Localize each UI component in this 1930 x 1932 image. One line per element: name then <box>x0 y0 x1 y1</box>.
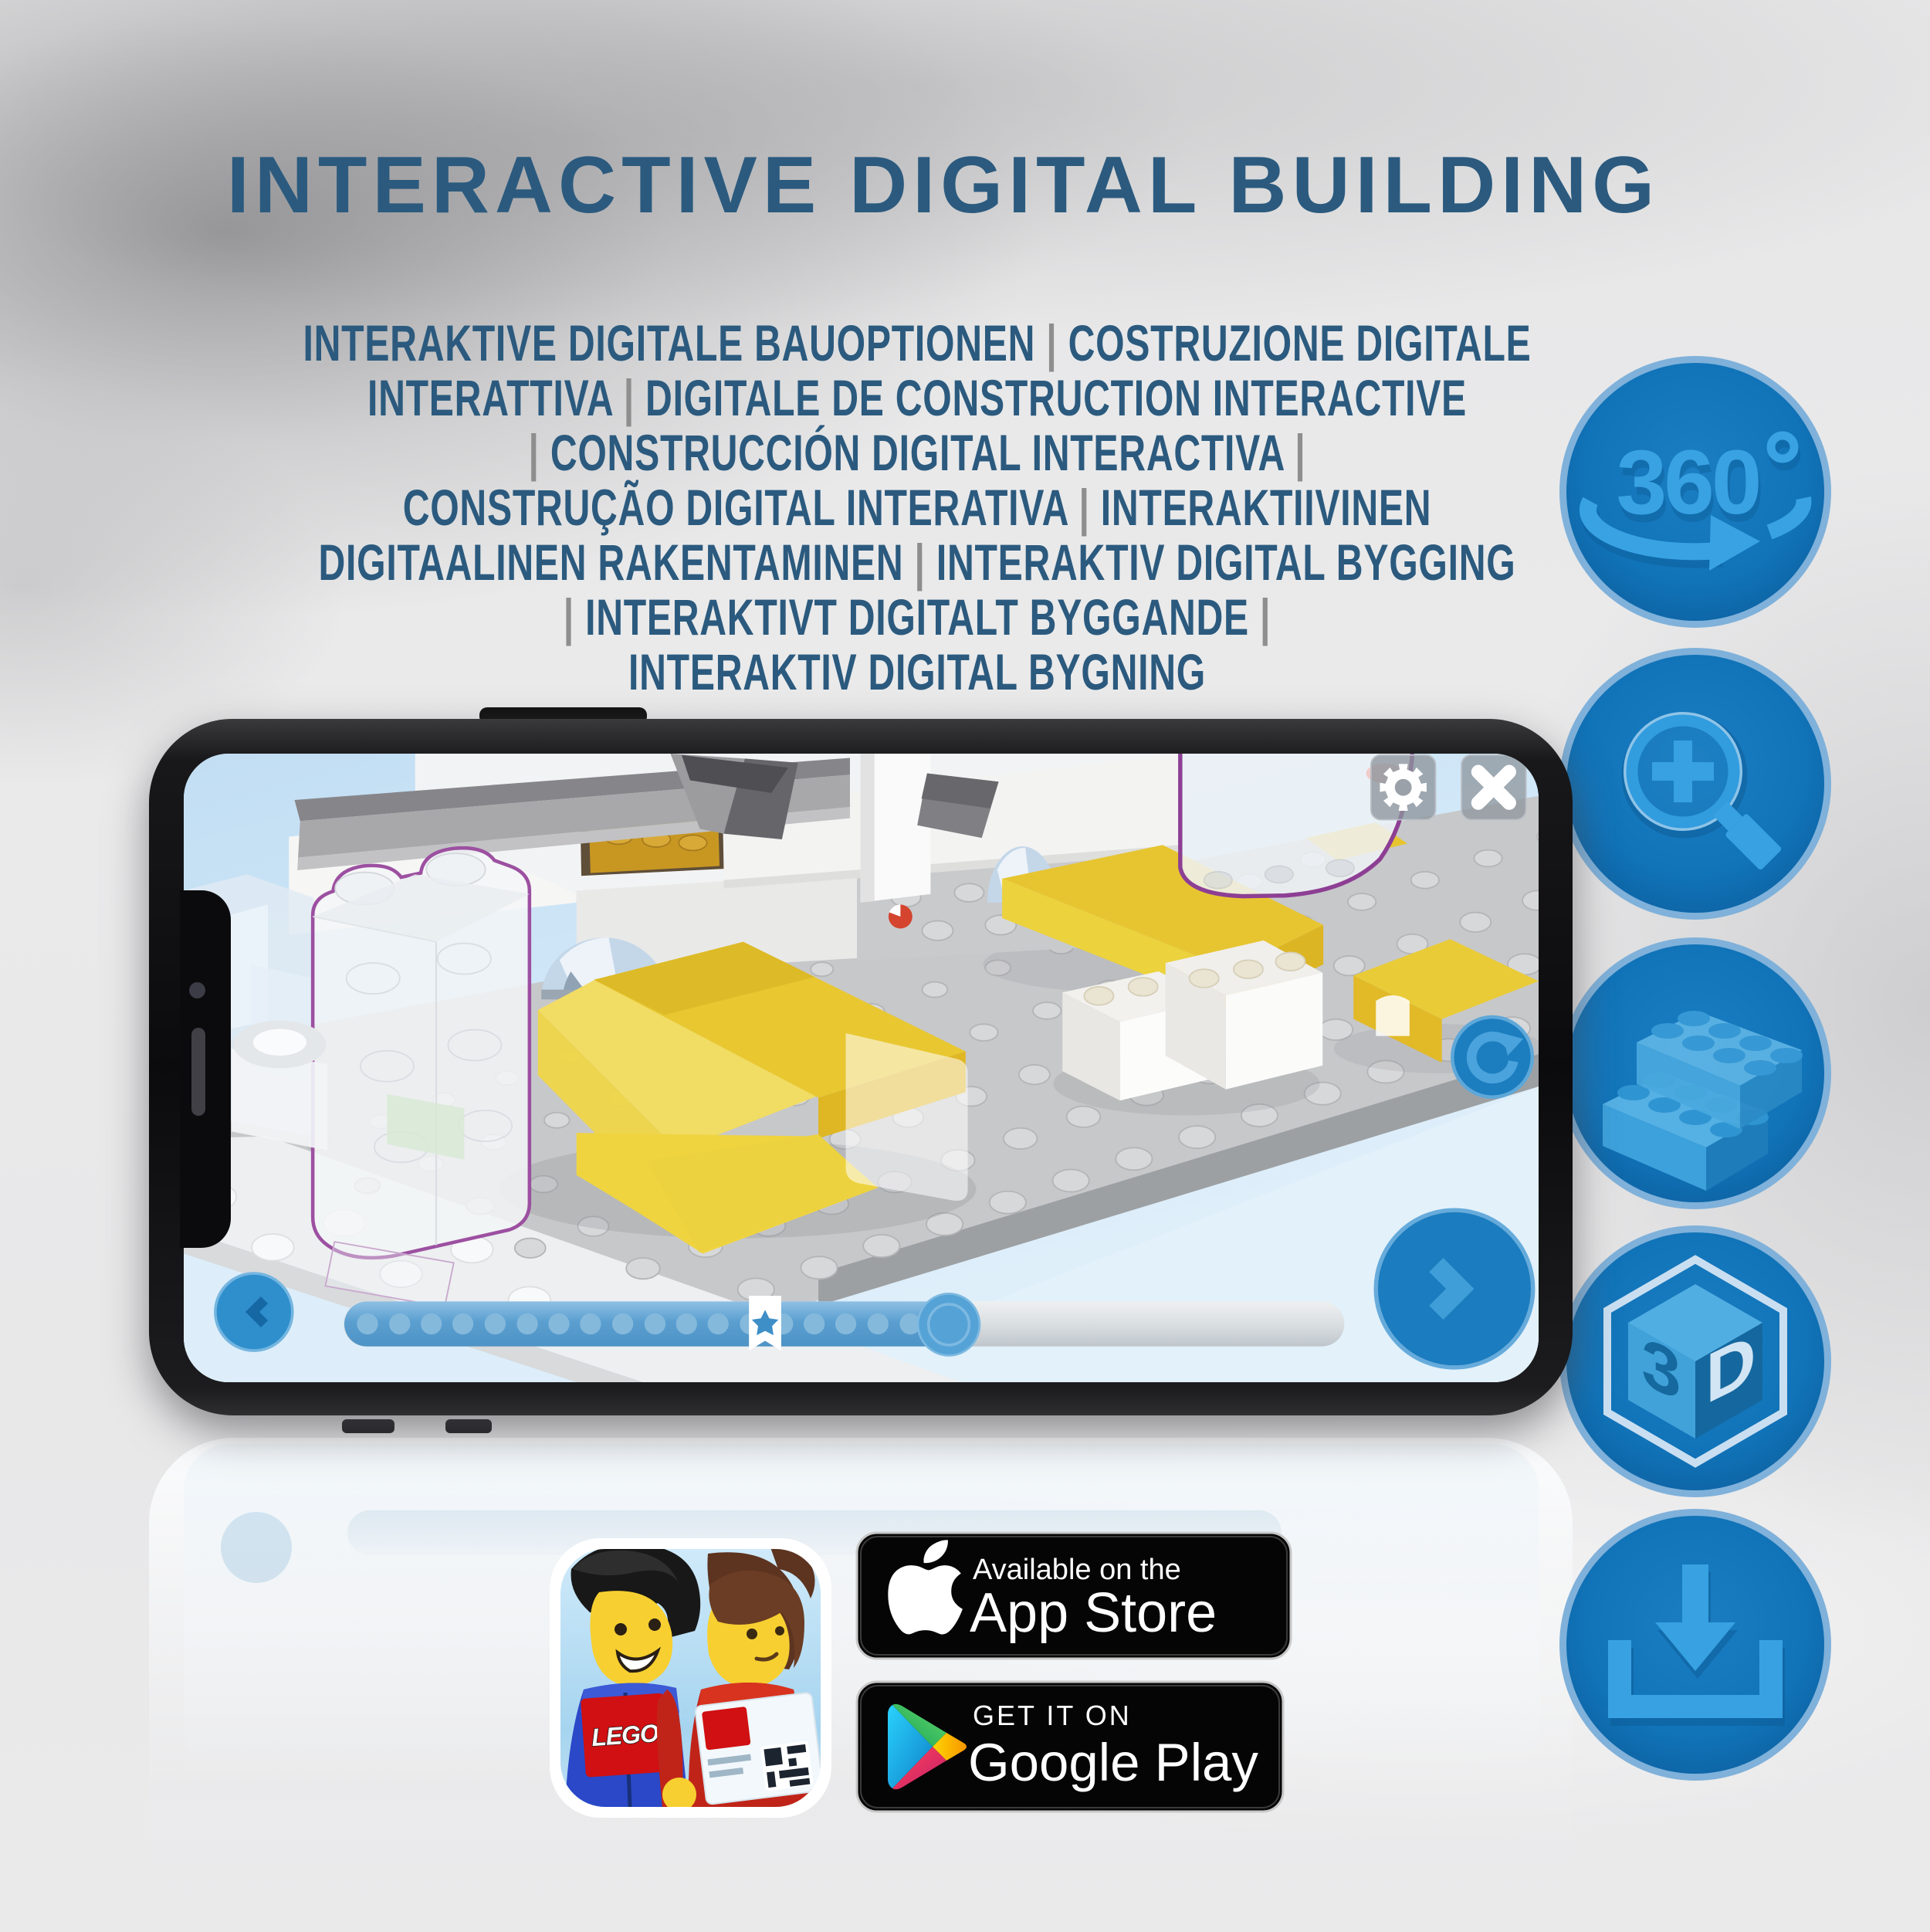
svg-text:360: 360 <box>1617 432 1759 534</box>
svg-text:GET IT ON: GET IT ON <box>973 1700 1132 1731</box>
svg-text:Available on the: Available on the <box>973 1554 1181 1586</box>
svg-text:LEGO: LEGO <box>591 1719 660 1751</box>
svg-text:App Store: App Store <box>970 1582 1217 1644</box>
svg-text:Google Play: Google Play <box>968 1733 1258 1792</box>
